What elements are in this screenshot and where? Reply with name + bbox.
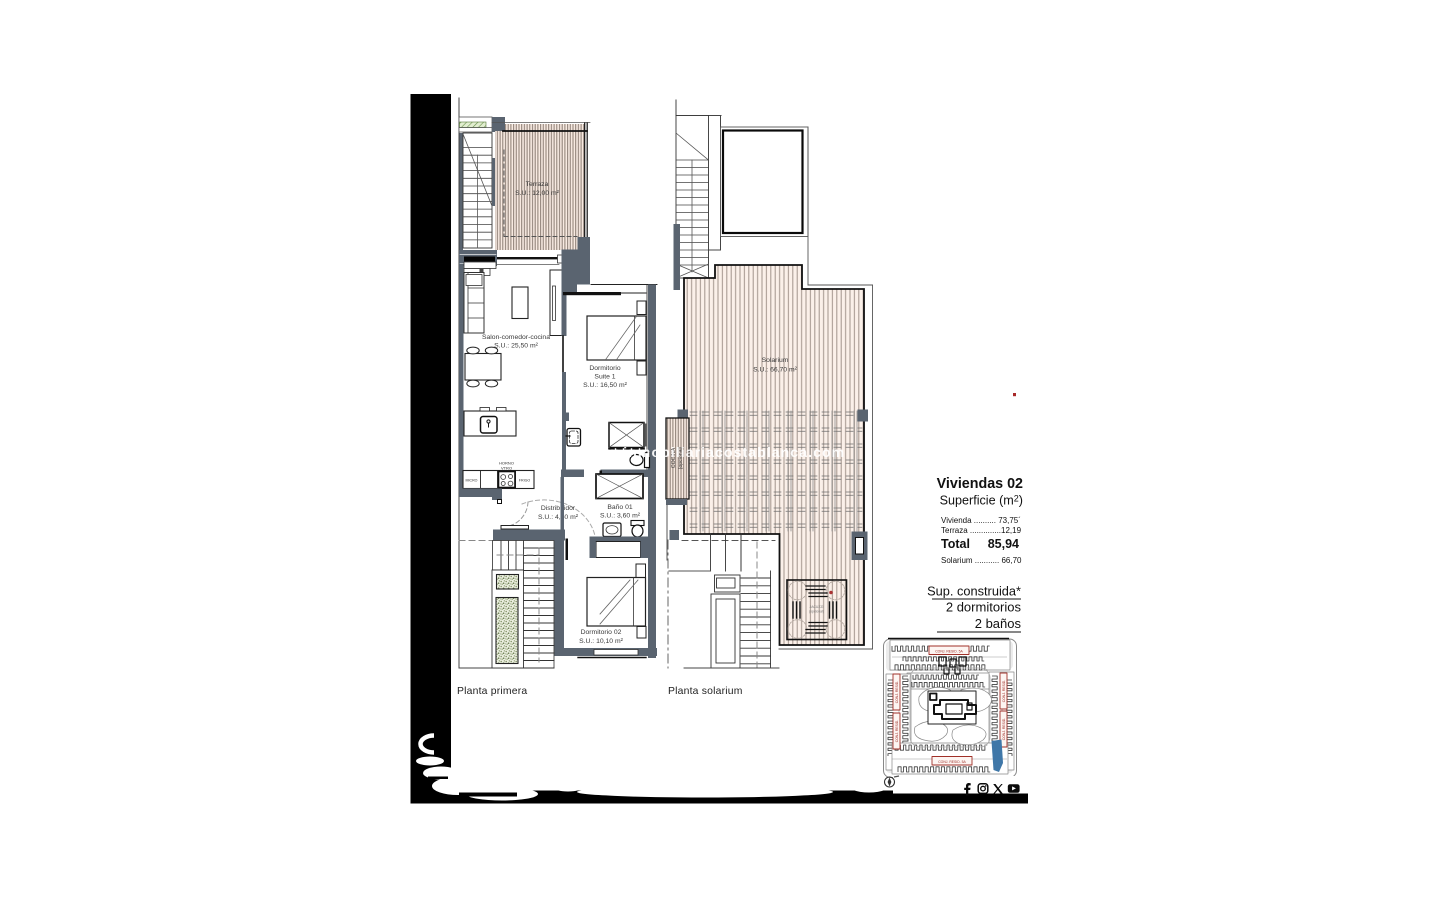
- svg-text:S.U.: 10,10 m²: S.U.: 10,10 m²: [579, 638, 624, 645]
- svg-text:Planta primera: Planta primera: [457, 686, 527, 697]
- svg-text:CONJ. RESID.: CONJ. RESID.: [895, 681, 899, 703]
- svg-text:Planta solarium: Planta solarium: [668, 686, 743, 697]
- svg-text:CONJ. RESID. 5A: CONJ. RESID. 5A: [938, 760, 966, 764]
- svg-text:Sup. construida*: Sup. construida*: [927, 584, 1021, 599]
- svg-text:S.U.: 3,60 m²: S.U.: 3,60 m²: [600, 513, 641, 520]
- svg-text:www.inmobiliariacostablanca.co: www.inmobiliariacostablanca.com: [582, 444, 845, 460]
- svg-text:Total: Total: [941, 537, 970, 551]
- svg-text:85,94: 85,94: [988, 537, 1019, 551]
- svg-text:Viviendas 02: Viviendas 02: [937, 476, 1023, 492]
- svg-text:Superficie (m2): Superficie (m2): [940, 494, 1023, 508]
- svg-text:Distribuidor: Distribuidor: [541, 505, 576, 512]
- svg-text:S.U.: 4,60 m²: S.U.: 4,60 m²: [538, 514, 579, 521]
- svg-text:Baño 01: Baño 01: [607, 504, 633, 511]
- svg-text:S.U.: 16,50 m²: S.U.: 16,50 m²: [583, 382, 628, 389]
- svg-text:Vivienda .......... 73,75´: Vivienda .......... 73,75´: [941, 516, 1021, 525]
- svg-text:Solarium: Solarium: [762, 357, 789, 364]
- svg-text:2 baños: 2 baños: [975, 616, 1022, 631]
- svg-text:CONJ. RESID.: CONJ. RESID.: [895, 720, 899, 742]
- svg-text:Terraza ..............12,19: Terraza ..............12,19: [941, 526, 1022, 535]
- svg-text:MICRO: MICRO: [466, 479, 478, 483]
- svg-text:Dormitorio 02: Dormitorio 02: [581, 629, 622, 636]
- svg-text:S.U.: 12,00 m²: S.U.: 12,00 m²: [515, 190, 560, 197]
- svg-text:Terraza: Terraza: [526, 181, 549, 188]
- svg-text:CONJ. RESID.: CONJ. RESID.: [1002, 718, 1006, 740]
- svg-text:Solarium ........... 66,70: Solarium ........... 66,70: [941, 556, 1022, 565]
- svg-text:JACUZZI: JACUZZI: [810, 605, 824, 609]
- svg-text:Dormitorio: Dormitorio: [589, 365, 621, 372]
- svg-text:CONJ. RESID. 5A: CONJ. RESID. 5A: [935, 649, 963, 653]
- svg-text:CONJ. RESID.: CONJ. RESID.: [1002, 680, 1006, 702]
- svg-text:S.U.: 66,70 m²: S.U.: 66,70 m²: [753, 367, 798, 374]
- svg-text:Suite 1: Suite 1: [594, 374, 615, 381]
- svg-text:S.U.: 25,50 m²: S.U.: 25,50 m²: [494, 343, 539, 350]
- svg-text:Salon-comedor-cocina: Salon-comedor-cocina: [482, 334, 550, 341]
- svg-text:(opcional): (opcional): [809, 610, 824, 614]
- svg-text:VTRO: VTRO: [501, 466, 512, 471]
- svg-text:2 dormitorios: 2 dormitorios: [946, 600, 1022, 615]
- svg-text:FRIGO: FRIGO: [519, 479, 531, 483]
